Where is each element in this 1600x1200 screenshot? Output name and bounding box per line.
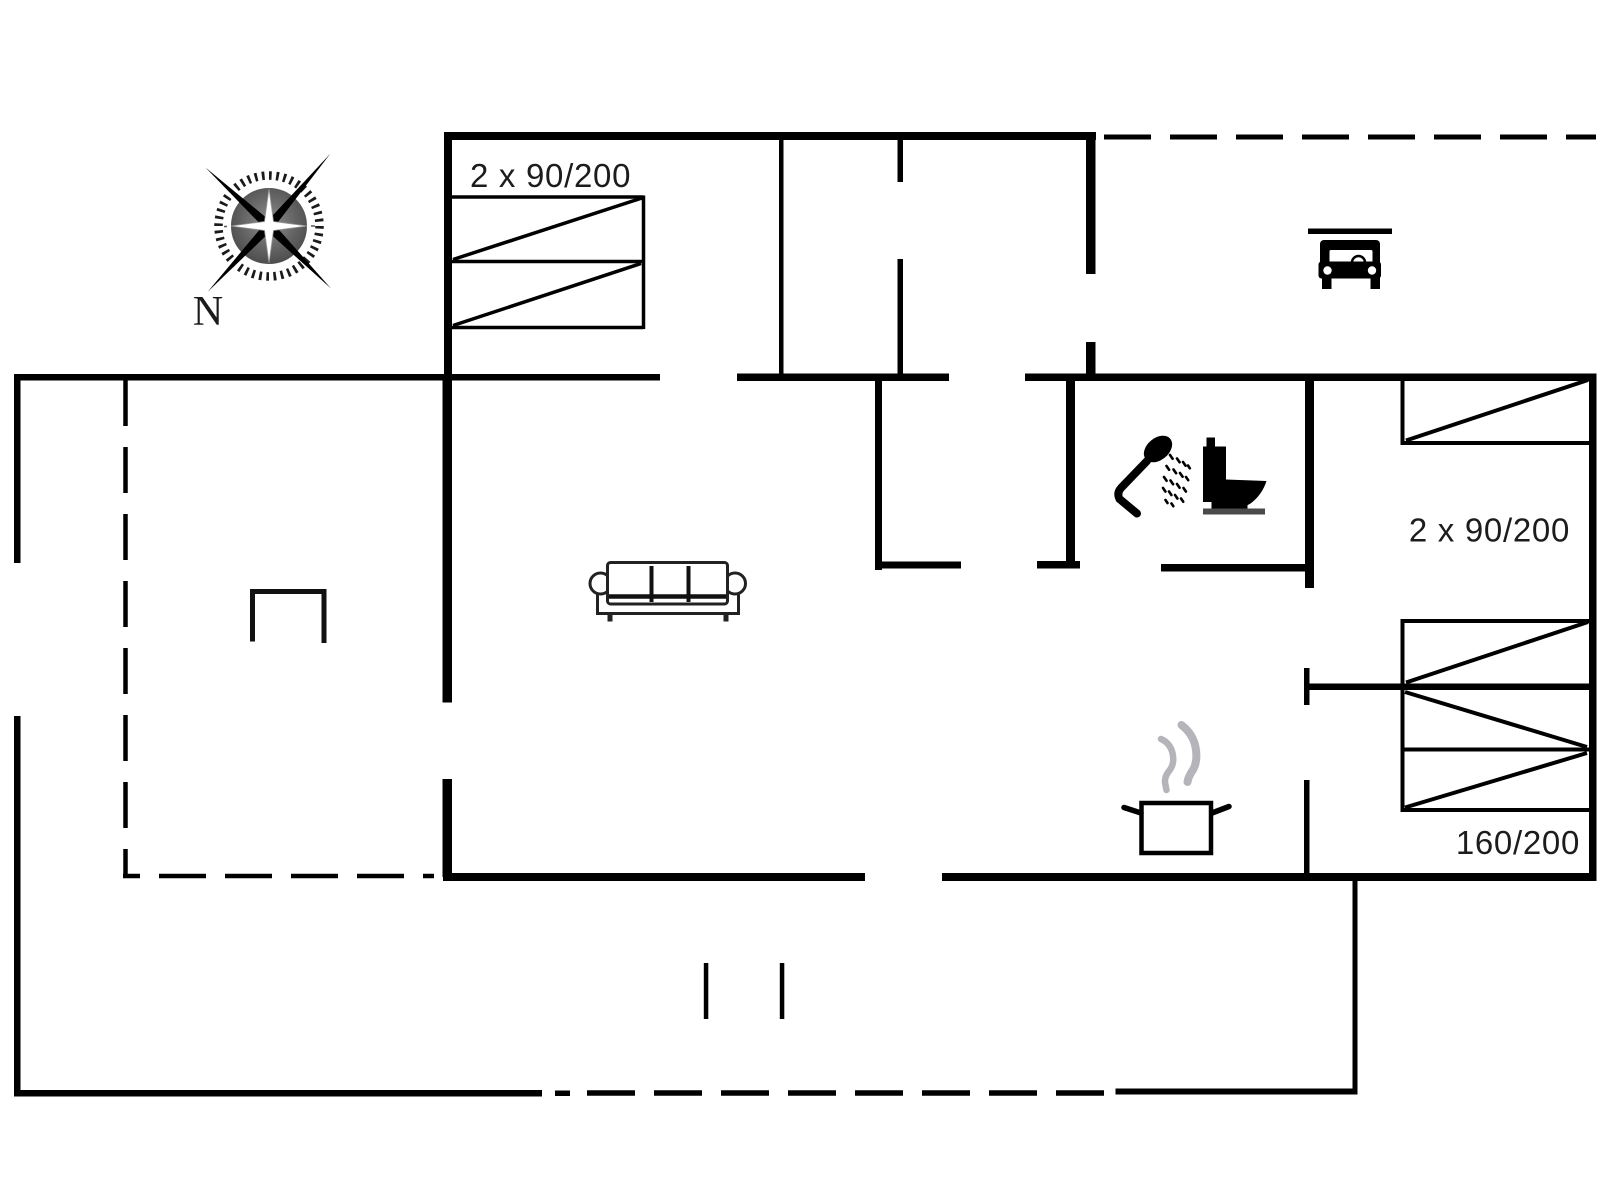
svg-text:2 x 90/200: 2 x 90/200 xyxy=(470,157,631,194)
svg-text:N: N xyxy=(193,289,223,335)
svg-text:2 x 90/200: 2 x 90/200 xyxy=(1409,512,1570,549)
svg-text:160/200: 160/200 xyxy=(1456,824,1580,861)
